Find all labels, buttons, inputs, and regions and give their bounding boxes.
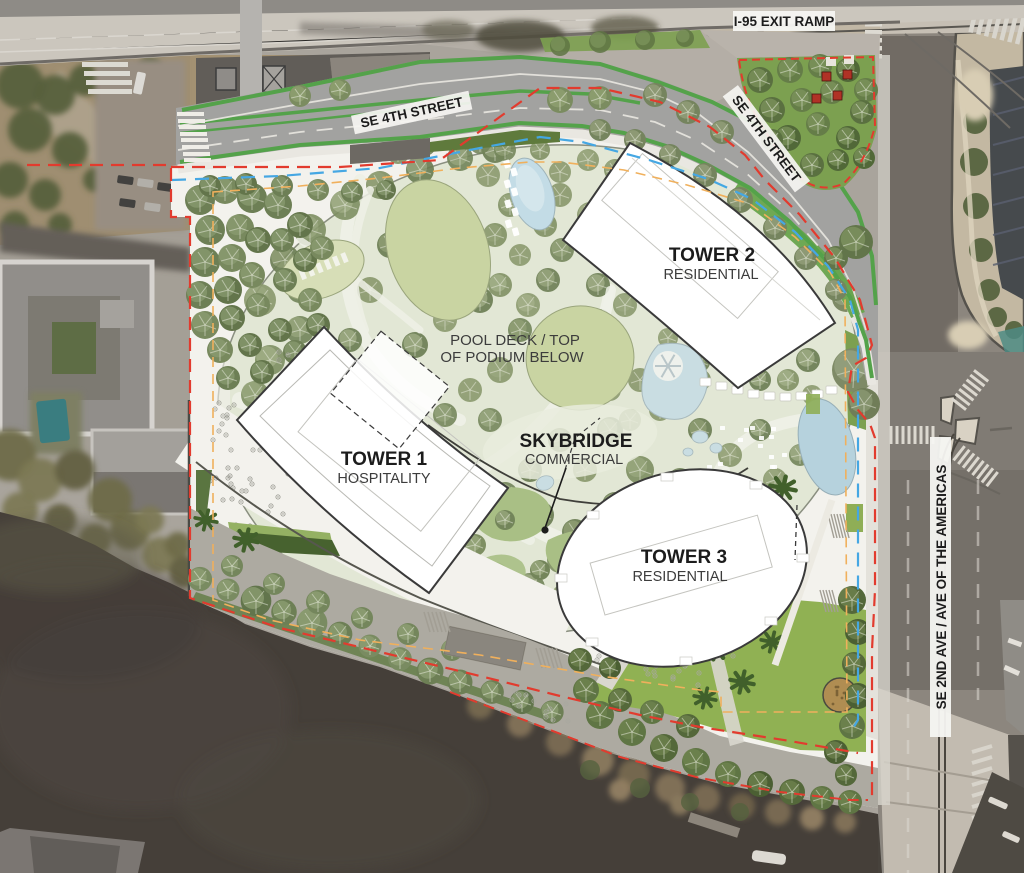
svg-text:COMMERCIAL: COMMERCIAL (525, 452, 623, 468)
svg-text:TOWER 2: TOWER 2 (669, 245, 755, 266)
svg-text:SE 2ND AVE / AVE OF THE AMERIC: SE 2ND AVE / AVE OF THE AMERICAS (934, 465, 949, 710)
svg-text:RESIDENTIAL: RESIDENTIAL (632, 569, 727, 585)
svg-text:HOSPITALITY: HOSPITALITY (337, 471, 431, 487)
svg-text:TOWER 1: TOWER 1 (341, 449, 428, 470)
svg-text:POOL DECK / TOP: POOL DECK / TOP (450, 332, 580, 349)
svg-text:RESIDENTIAL: RESIDENTIAL (663, 267, 758, 283)
svg-text:TOWER 3: TOWER 3 (641, 547, 727, 568)
svg-text:OF PODIUM BELOW: OF PODIUM BELOW (440, 349, 584, 366)
svg-text:I-95 EXIT RAMP: I-95 EXIT RAMP (734, 14, 835, 29)
svg-text:SKYBRIDGE: SKYBRIDGE (520, 431, 633, 452)
